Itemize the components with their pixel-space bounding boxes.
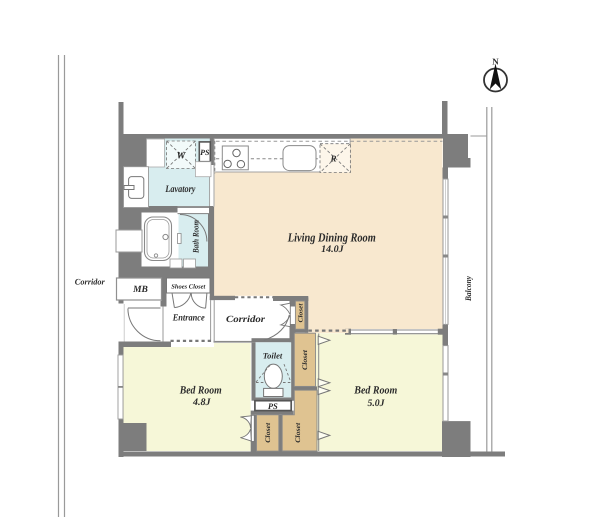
svg-text:Toilet: Toilet <box>263 351 283 361</box>
svg-text:Closet: Closet <box>294 422 302 443</box>
svg-text:PS: PS <box>200 148 210 157</box>
svg-text:14.0J: 14.0J <box>321 244 345 255</box>
svg-text:Corridor: Corridor <box>75 277 106 287</box>
svg-text:Lavatory: Lavatory <box>165 184 196 195</box>
svg-text:Bed Room: Bed Room <box>353 384 397 396</box>
svg-text:Closet: Closet <box>264 422 272 443</box>
svg-text:MB: MB <box>132 285 148 295</box>
svg-text:Closet: Closet <box>301 349 309 370</box>
svg-text:Bed Room: Bed Room <box>179 384 222 396</box>
svg-text:Living Dining Room: Living Dining Room <box>287 230 376 244</box>
svg-text:Shoes Closet: Shoes Closet <box>171 284 205 291</box>
svg-text:R: R <box>329 154 336 164</box>
svg-text:5.0J: 5.0J <box>368 398 386 409</box>
svg-text:Closet: Closet <box>297 303 304 322</box>
svg-text:PS: PS <box>268 401 278 411</box>
svg-text:4.8J: 4.8J <box>192 397 212 408</box>
svg-text:Balcony: Balcony <box>463 276 473 302</box>
svg-text:W: W <box>177 151 187 162</box>
svg-text:Bath Room: Bath Room <box>190 220 200 254</box>
svg-text:Entrance: Entrance <box>172 313 206 323</box>
svg-text:Corridor: Corridor <box>226 315 265 325</box>
